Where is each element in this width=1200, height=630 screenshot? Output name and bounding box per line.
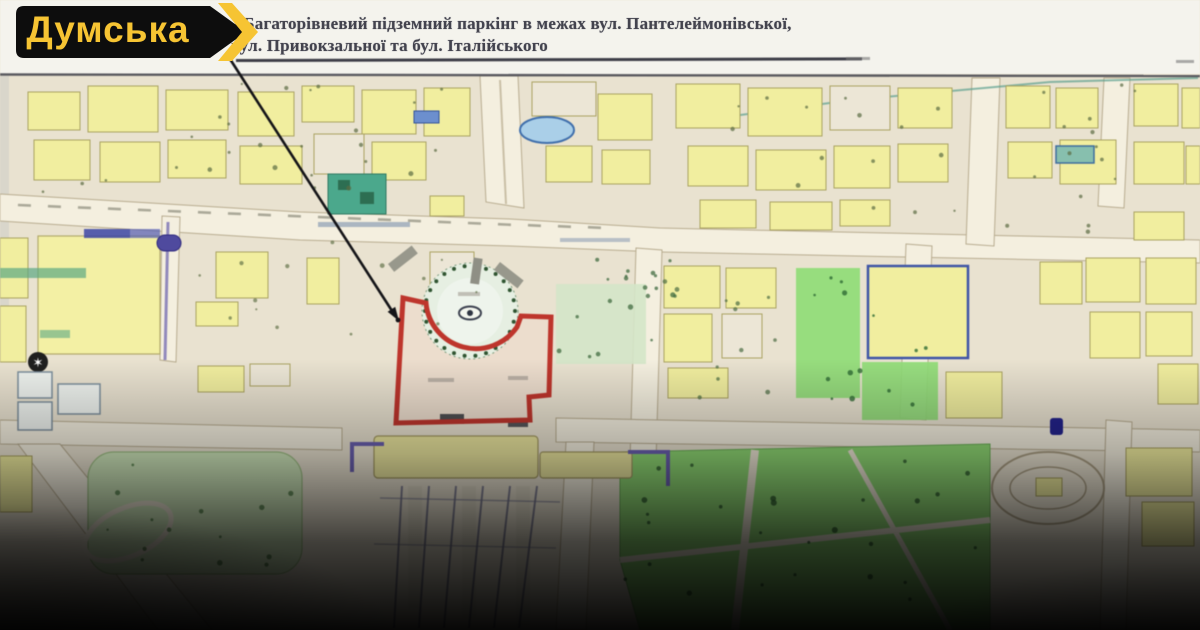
document-title-line1: ) Багаторівневий підземний паркінг в меж… [233, 14, 792, 34]
brand-logo: Думська [8, 3, 220, 57]
road-oval [992, 452, 1104, 524]
city-plan-map: ✶ [0, 0, 1200, 630]
blue-outline-block [868, 266, 968, 358]
brand-logo-text: Думська [8, 3, 208, 57]
monument-star: ✶ [28, 352, 48, 372]
document-title-line2: вул. Привокзальної та бул. Італійського [231, 36, 548, 56]
pond [520, 117, 574, 143]
video-frame: ✶ [0, 0, 1200, 630]
blue-building [414, 111, 439, 123]
svg-text:✶: ✶ [33, 355, 44, 370]
